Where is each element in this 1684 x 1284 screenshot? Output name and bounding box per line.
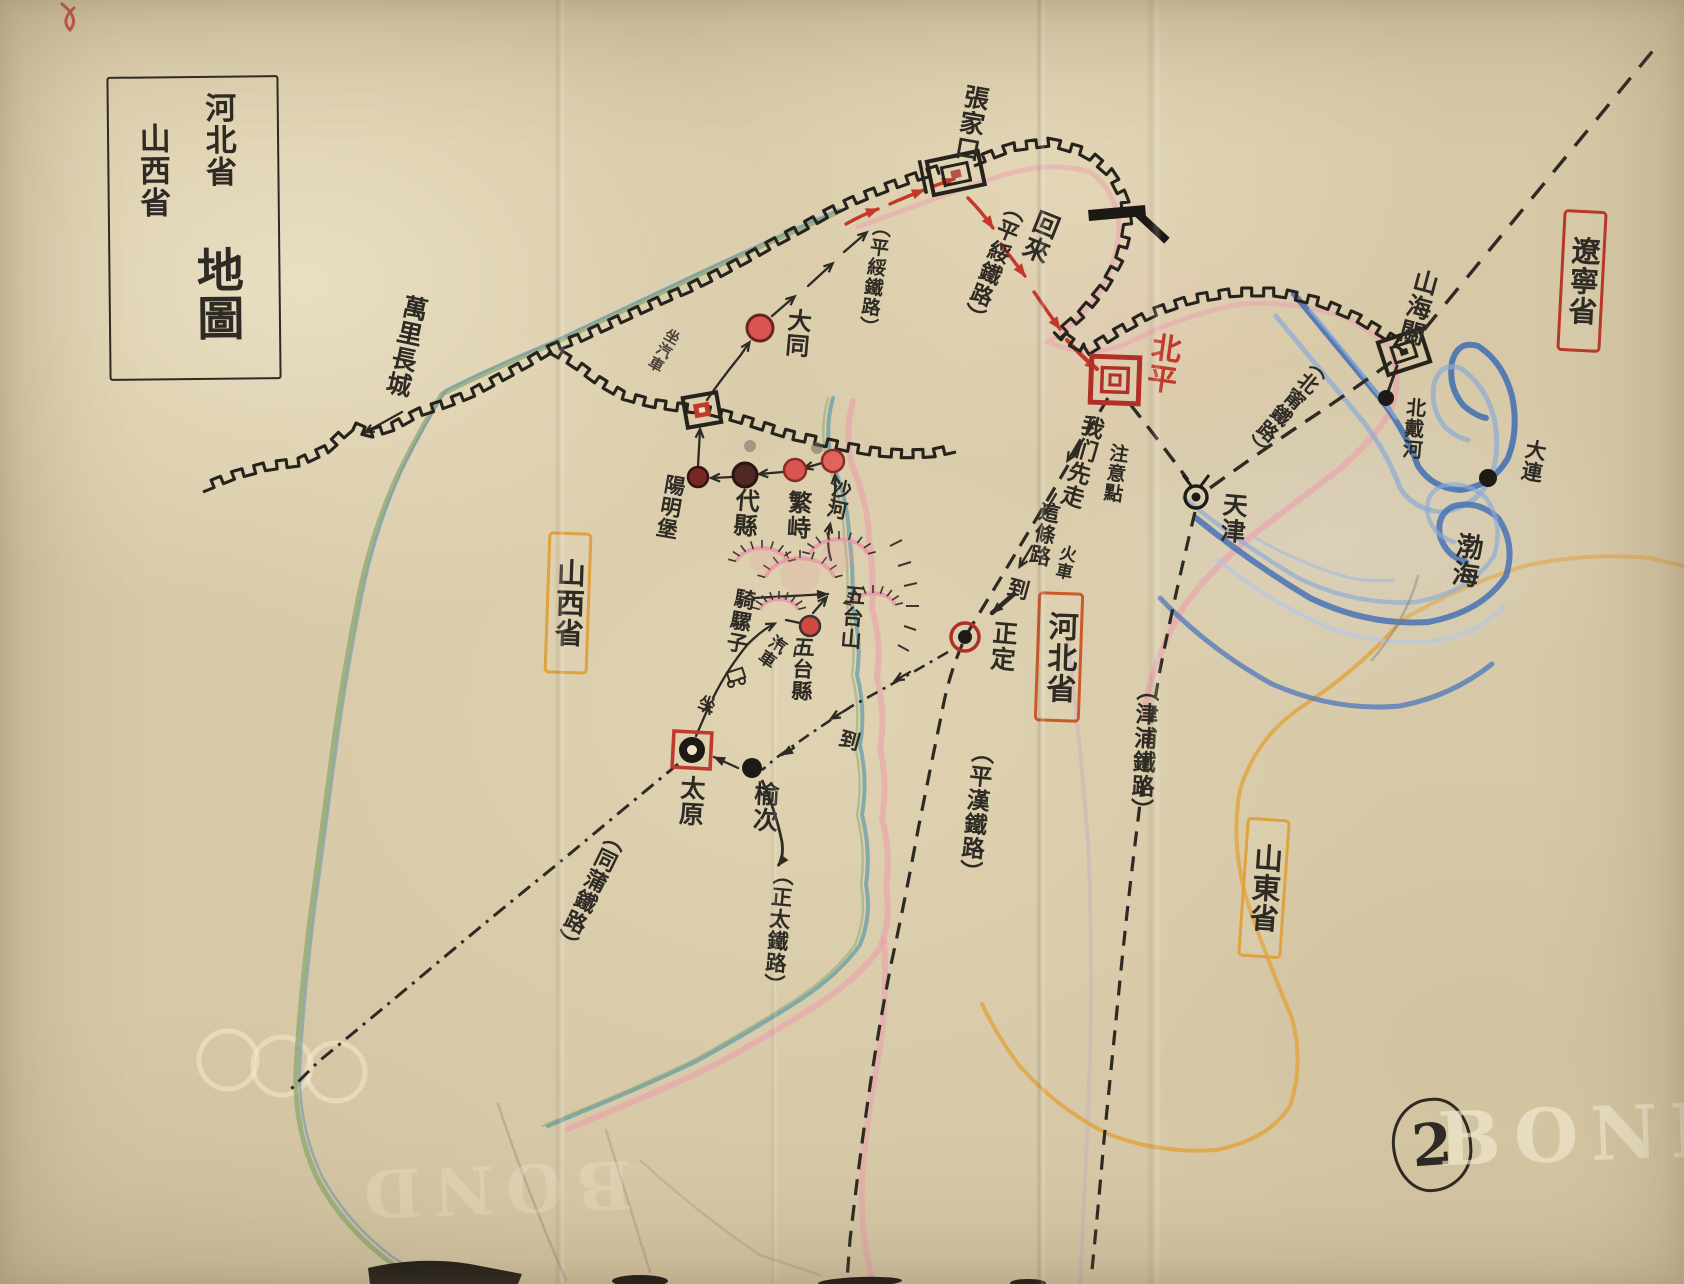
province-box-liaoning: 遼寧省 [1556, 209, 1608, 353]
ink-smudge [811, 442, 823, 454]
arrow-into-taiyuan [714, 757, 738, 768]
ink-smudge [744, 440, 756, 452]
bohai-sea-strokes [1160, 294, 1515, 707]
city-symbol-tianjin [1183, 475, 1209, 508]
city-dot-yuci [742, 758, 762, 778]
city-dot-daixian [733, 463, 757, 487]
pink-borders [568, 167, 1397, 1284]
railway-beiping-tianjin [1130, 404, 1188, 480]
label-daixian: 代縣 [730, 487, 759, 539]
label-beiping: 北平 [1141, 330, 1181, 396]
city-dot-dalian [1479, 469, 1497, 487]
city-dot-fanshi [784, 459, 806, 481]
city-dot-shahe [822, 450, 844, 472]
label-wutai-county: 五台縣 [789, 635, 814, 702]
rivers [296, 209, 868, 1280]
railway-beining-northeast [1424, 42, 1660, 330]
railways [290, 42, 1660, 1280]
province-box-shanxi: 山西省 [544, 531, 593, 674]
page-number: 2 [1409, 1110, 1454, 1181]
label-datong: 大同 [782, 307, 811, 359]
ride-mule-arrow [754, 594, 828, 598]
label-tianjin: 天津 [1217, 491, 1248, 545]
mountain-shading [750, 539, 855, 595]
watermark-circles [199, 1031, 365, 1101]
hand-drawn-map: 河北省 山西省 地圖 萬里長城 張家口 （平綏鐵路） 回來 北平 我们先走 注意… [0, 0, 1684, 1284]
city-symbol-zhengding [951, 623, 979, 651]
city-symbol-taiyuan [672, 731, 712, 769]
bottom-edge-ink-marks [368, 1261, 1046, 1284]
city-dot-yangmingbu [688, 467, 708, 487]
label-beidaihe: 北戴河 [1399, 396, 1425, 461]
title-region-hebei: 河北省 [201, 92, 235, 188]
title-region-shanxi: 山西省 [135, 122, 169, 218]
label-railway-jinpu: （津浦鐵路） [1126, 677, 1158, 822]
railway-jinpu [1092, 512, 1195, 1270]
city-dot-beidaihe [1378, 390, 1394, 406]
label-wutaishan: 五台山 [838, 583, 866, 651]
river-central-green [543, 398, 863, 1126]
red-corner-mark [62, 4, 74, 30]
province-box-hebei: 河北省 [1034, 591, 1084, 723]
city-dot-wutai-county [800, 616, 820, 636]
river-central-teal [548, 398, 868, 1126]
label-taiyuan: 太原 [676, 774, 705, 827]
map-title-box: 河北省 山西省 地圖 [106, 75, 281, 381]
label-yuci: 榆次 [750, 780, 779, 833]
railway-tongpu [290, 764, 678, 1090]
label-bohai-sea: 渤海 [1446, 530, 1482, 589]
label-zhengding: 正定 [987, 619, 1018, 673]
city-dot-datong [747, 315, 773, 341]
label-fanshi: 繁峙 [784, 489, 812, 540]
city-symbol-beiping [1090, 356, 1140, 404]
title-word-map: 地圖 [190, 246, 240, 343]
